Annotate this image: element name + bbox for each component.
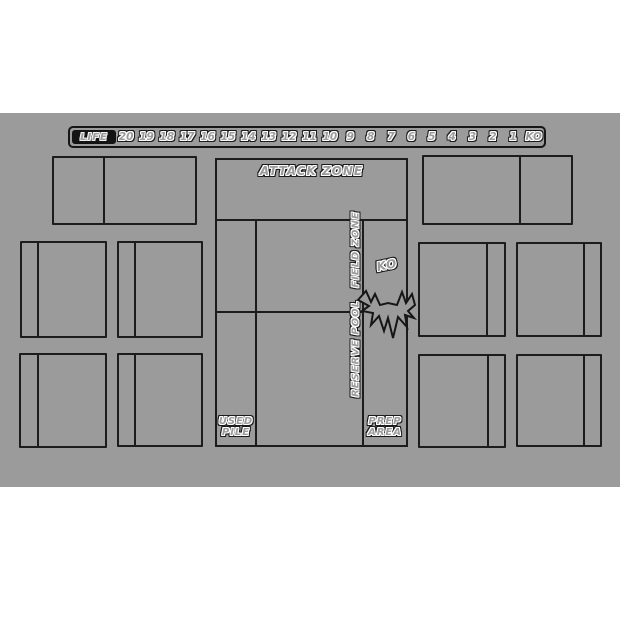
life-value-11: 11: [299, 131, 319, 143]
prep-area-label: PREP AREA: [364, 416, 406, 438]
card-zone-right-bottom-1: [418, 354, 506, 448]
life-label: LIFE: [80, 132, 108, 143]
card-zone-top-right: [422, 155, 573, 225]
card-zone-left-bottom-1-divider: [37, 355, 39, 446]
attack-zone-label: ATTACK ZONE: [217, 164, 406, 178]
life-value-17: 17: [177, 131, 197, 143]
card-zone-left-mid-1-divider: [37, 243, 39, 336]
card-zone-top-right-divider: [519, 157, 521, 223]
used-pile-column-line: [255, 221, 257, 445]
life-value-12: 12: [279, 131, 299, 143]
card-zone-left-mid-1: [20, 241, 107, 338]
prep-area-line1: PREP: [368, 416, 401, 427]
field-zone-label: FIELD ZONE: [351, 205, 362, 295]
ko-zone-label: KO: [363, 253, 411, 276]
life-value-14: 14: [238, 131, 258, 143]
used-pile-line2: PILE: [222, 427, 250, 438]
attack-zone-divider: [217, 219, 406, 221]
used-pile-line1: USED: [219, 416, 253, 427]
life-value-10: 10: [320, 131, 340, 143]
explosion-burst-icon: [350, 283, 420, 345]
used-pile-label: USED PILE: [217, 416, 255, 438]
card-zone-right-bottom-1-divider: [487, 356, 489, 446]
card-zone-right-mid-2-divider: [583, 244, 585, 335]
playmat-image: LIFE 2019181716151413121110987654321KO: [0, 0, 620, 620]
field-reserve-divider: [217, 311, 364, 313]
life-value-2: 2: [483, 131, 503, 143]
life-value-5: 5: [422, 131, 442, 143]
card-zone-left-bottom-1: [19, 353, 107, 448]
life-tracker-bar: LIFE 2019181716151413121110987654321KO: [68, 126, 546, 148]
life-value-13: 13: [259, 131, 279, 143]
life-label-chip: LIFE: [72, 130, 116, 144]
life-value-KO: KO: [524, 131, 544, 143]
card-zone-right-bottom-2: [516, 354, 602, 447]
card-zone-right-mid-1-divider: [486, 244, 488, 335]
life-value-8: 8: [361, 131, 381, 143]
life-value-4: 4: [442, 131, 462, 143]
life-value-20: 20: [116, 131, 136, 143]
prep-area-line2: AREA: [368, 427, 402, 438]
card-zone-right-bottom-2-divider: [583, 356, 585, 445]
life-value-6: 6: [401, 131, 421, 143]
card-zone-right-mid-1: [418, 242, 506, 337]
life-value-9: 9: [340, 131, 360, 143]
life-value-19: 19: [136, 131, 156, 143]
life-value-15: 15: [218, 131, 238, 143]
card-zone-left-bottom-2: [117, 353, 203, 447]
life-value-3: 3: [462, 131, 482, 143]
card-zone-top-left: [52, 156, 197, 225]
life-values: 2019181716151413121110987654321KO: [116, 128, 544, 146]
life-value-18: 18: [157, 131, 177, 143]
life-value-7: 7: [381, 131, 401, 143]
card-zone-left-mid-2-divider: [134, 243, 136, 336]
card-zone-right-mid-2: [516, 242, 602, 337]
card-zone-left-bottom-2-divider: [134, 355, 136, 445]
card-zone-left-mid-2: [117, 241, 203, 338]
card-zone-top-left-divider: [103, 158, 105, 223]
life-value-16: 16: [198, 131, 218, 143]
life-value-1: 1: [503, 131, 523, 143]
